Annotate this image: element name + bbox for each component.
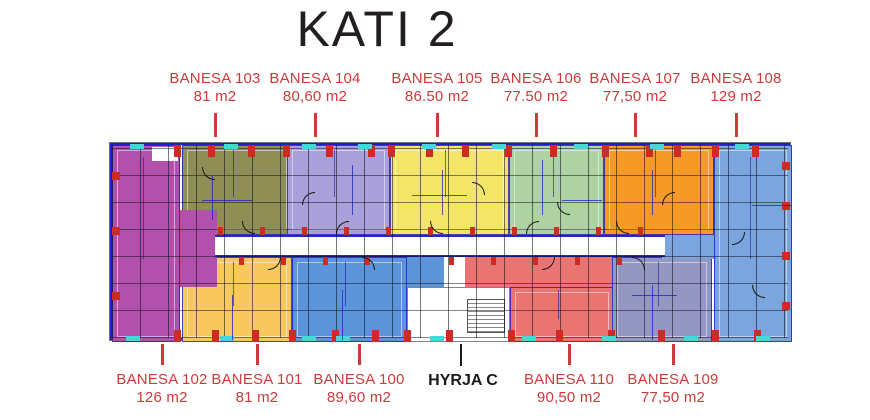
wall-pier	[533, 257, 538, 265]
entrance-label: HYRJA C	[403, 372, 523, 390]
unit-name: BANESA 109	[598, 371, 748, 389]
balcony-marker	[650, 144, 664, 149]
wall-pier	[470, 227, 475, 235]
balcony-marker	[735, 144, 749, 149]
entrance-label-text: HYRJA C	[428, 372, 498, 389]
entrance-hall	[407, 287, 510, 342]
balcony-marker	[522, 336, 536, 341]
wall-pier	[575, 257, 580, 265]
entrance-vestibule	[444, 257, 465, 287]
balcony-marker	[302, 336, 316, 341]
wall-pier	[505, 145, 512, 157]
unit-region-110	[465, 257, 614, 287]
balcony-marker	[336, 336, 350, 341]
wall-pier	[508, 330, 515, 342]
wall-pier	[174, 145, 181, 157]
unit-region-104	[287, 145, 390, 235]
leader-line	[314, 113, 317, 137]
interior-wall	[352, 165, 353, 215]
label-banesa-109: BANESA 10977,50 m2	[598, 371, 748, 407]
floor-plan-page: KATI 2 BANESA 10381 m2BANESA 10480,60 m2…	[0, 0, 870, 420]
wall-pier	[404, 330, 411, 342]
unit-region-102	[112, 145, 180, 342]
leader-line	[161, 344, 164, 365]
leader-line	[735, 113, 738, 137]
unit-area: 77,50 m2	[598, 389, 748, 407]
wall-pier	[289, 330, 296, 342]
wall-pier	[174, 330, 181, 342]
label-banesa-108: BANESA 108129 m2	[661, 70, 811, 106]
balcony-marker	[130, 144, 144, 149]
interior-wall	[342, 290, 343, 340]
wall-pier	[388, 145, 395, 157]
leader-line	[634, 113, 637, 137]
leader-line	[568, 344, 571, 365]
balcony-marker	[302, 144, 316, 149]
wall-pier	[112, 227, 120, 235]
wall-pier	[554, 227, 559, 235]
wall-pier	[782, 162, 790, 170]
balcony-marker	[602, 336, 616, 341]
wall-pier	[386, 227, 391, 235]
interior-wall	[212, 175, 213, 220]
unit-region-100	[292, 257, 407, 342]
wall-pier	[252, 330, 259, 342]
wall-pier	[596, 227, 601, 235]
building-plan	[110, 143, 790, 340]
wall-pier	[372, 330, 379, 342]
wall-pier	[782, 252, 790, 260]
balcony-marker	[430, 336, 444, 341]
unit-region-108	[662, 235, 714, 259]
wall-pier	[283, 145, 290, 157]
wall-pier	[638, 227, 643, 235]
balcony-marker	[684, 336, 698, 341]
interior-wall	[562, 200, 602, 201]
interior-wall	[412, 195, 467, 196]
interior-wall	[752, 205, 792, 206]
wall-pier	[446, 330, 453, 342]
wall-pier	[556, 330, 563, 342]
balcony-marker	[224, 144, 238, 149]
wall-pier	[323, 257, 328, 265]
wall-pier	[218, 227, 223, 235]
wall-pier	[212, 330, 219, 342]
stairs-icon	[467, 299, 505, 333]
leader-line	[358, 344, 361, 365]
wall-pier	[239, 257, 244, 265]
balcony-marker	[574, 144, 588, 149]
balcony-marker	[126, 336, 140, 341]
wall-pier	[112, 172, 120, 180]
wall-pier	[491, 257, 496, 265]
wall-pier	[712, 330, 719, 342]
unit-region-100	[407, 257, 444, 287]
unit-area: 129 m2	[661, 88, 811, 106]
wall-pier	[782, 302, 790, 310]
corridor	[215, 235, 665, 257]
wall-pier	[326, 145, 333, 157]
wall-pier	[782, 202, 790, 210]
wall-pier	[752, 145, 759, 157]
balcony-marker	[492, 144, 506, 149]
wall-pier	[617, 257, 622, 265]
wall-pier	[449, 257, 454, 265]
wall-pier	[208, 145, 215, 157]
unit-region-105	[390, 145, 509, 235]
interior-wall	[632, 295, 677, 296]
leader-line	[535, 113, 538, 137]
wall-pier	[512, 227, 517, 235]
wall-pier	[112, 292, 120, 300]
entrance-leader-line	[460, 344, 462, 366]
unit-area: 89,60 m2	[284, 389, 434, 407]
balcony-marker	[358, 144, 372, 149]
wall-pier	[302, 227, 307, 235]
unit-region-106	[509, 145, 604, 235]
wall-pier	[602, 145, 609, 157]
leader-line	[214, 113, 217, 137]
wall-pier	[658, 330, 665, 342]
leader-line	[672, 344, 675, 365]
leader-line	[256, 344, 259, 365]
unit-region-108	[714, 145, 792, 342]
unit-region-102	[180, 210, 217, 287]
wall-pier	[712, 145, 719, 157]
interior-wall	[442, 170, 443, 215]
interior-wall	[652, 285, 653, 340]
wall-pier	[281, 257, 286, 265]
wall-pier	[674, 145, 681, 157]
wall-pier	[462, 145, 469, 157]
balcony-marker	[422, 144, 436, 149]
wall-pier	[550, 145, 557, 157]
unit-name: BANESA 108	[661, 70, 811, 88]
interior-wall	[542, 160, 543, 215]
interior-wall	[202, 200, 252, 201]
wall-pier	[248, 145, 255, 157]
leader-line	[436, 113, 439, 137]
balcony-marker	[756, 336, 770, 341]
interior-wall	[232, 295, 233, 340]
page-title: KATI 2	[296, 0, 457, 58]
interior-wall	[652, 170, 653, 215]
wall-pier	[260, 227, 265, 235]
